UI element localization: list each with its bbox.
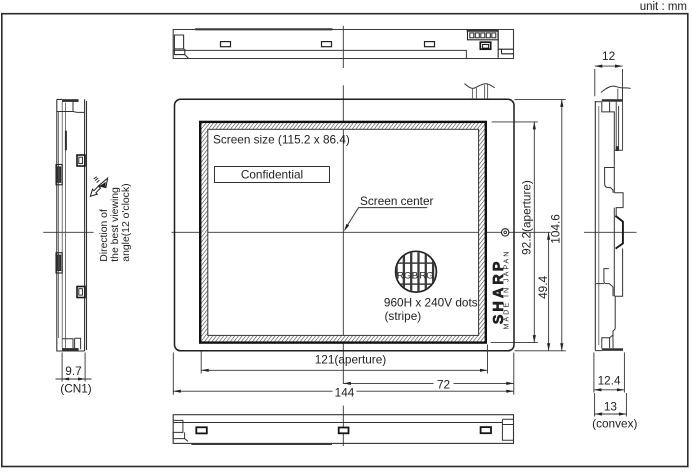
svg-text:(convex): (convex) <box>592 416 637 430</box>
svg-text:121(aperture): 121(aperture) <box>315 353 387 367</box>
svg-text:960H x 240V dots: 960H x 240V dots <box>384 295 478 309</box>
svg-text:92.2(aperture): 92.2(aperture) <box>519 180 533 255</box>
svg-text:the best viewing: the best viewing <box>110 187 121 262</box>
svg-text:G: G <box>426 270 433 281</box>
svg-text:unit : mm: unit : mm <box>640 1 687 13</box>
svg-text:Confidential: Confidential <box>241 168 303 182</box>
svg-text:12.4: 12.4 <box>598 374 621 388</box>
svg-text:B: B <box>412 270 418 281</box>
svg-text:MADE IN JAPAN: MADE IN JAPAN <box>502 250 511 330</box>
svg-text:12: 12 <box>602 49 615 63</box>
svg-text:Screen center: Screen center <box>360 194 434 208</box>
svg-text:144: 144 <box>335 386 355 400</box>
svg-text:Direction of: Direction of <box>99 209 110 262</box>
svg-text:9.7: 9.7 <box>65 364 81 378</box>
svg-text:G: G <box>404 270 411 281</box>
svg-text:104.6: 104.6 <box>548 214 562 244</box>
svg-text:72: 72 <box>437 378 450 392</box>
svg-text:(CN1): (CN1) <box>60 382 92 396</box>
svg-text:angle(12 o'clock): angle(12 o'clock) <box>121 183 132 261</box>
svg-text:13: 13 <box>604 399 618 413</box>
svg-text:Screen size (115.2 x 86.4): Screen size (115.2 x 86.4) <box>213 132 350 146</box>
svg-text:49.4: 49.4 <box>536 276 550 299</box>
svg-text:(stripe): (stripe) <box>385 309 422 323</box>
